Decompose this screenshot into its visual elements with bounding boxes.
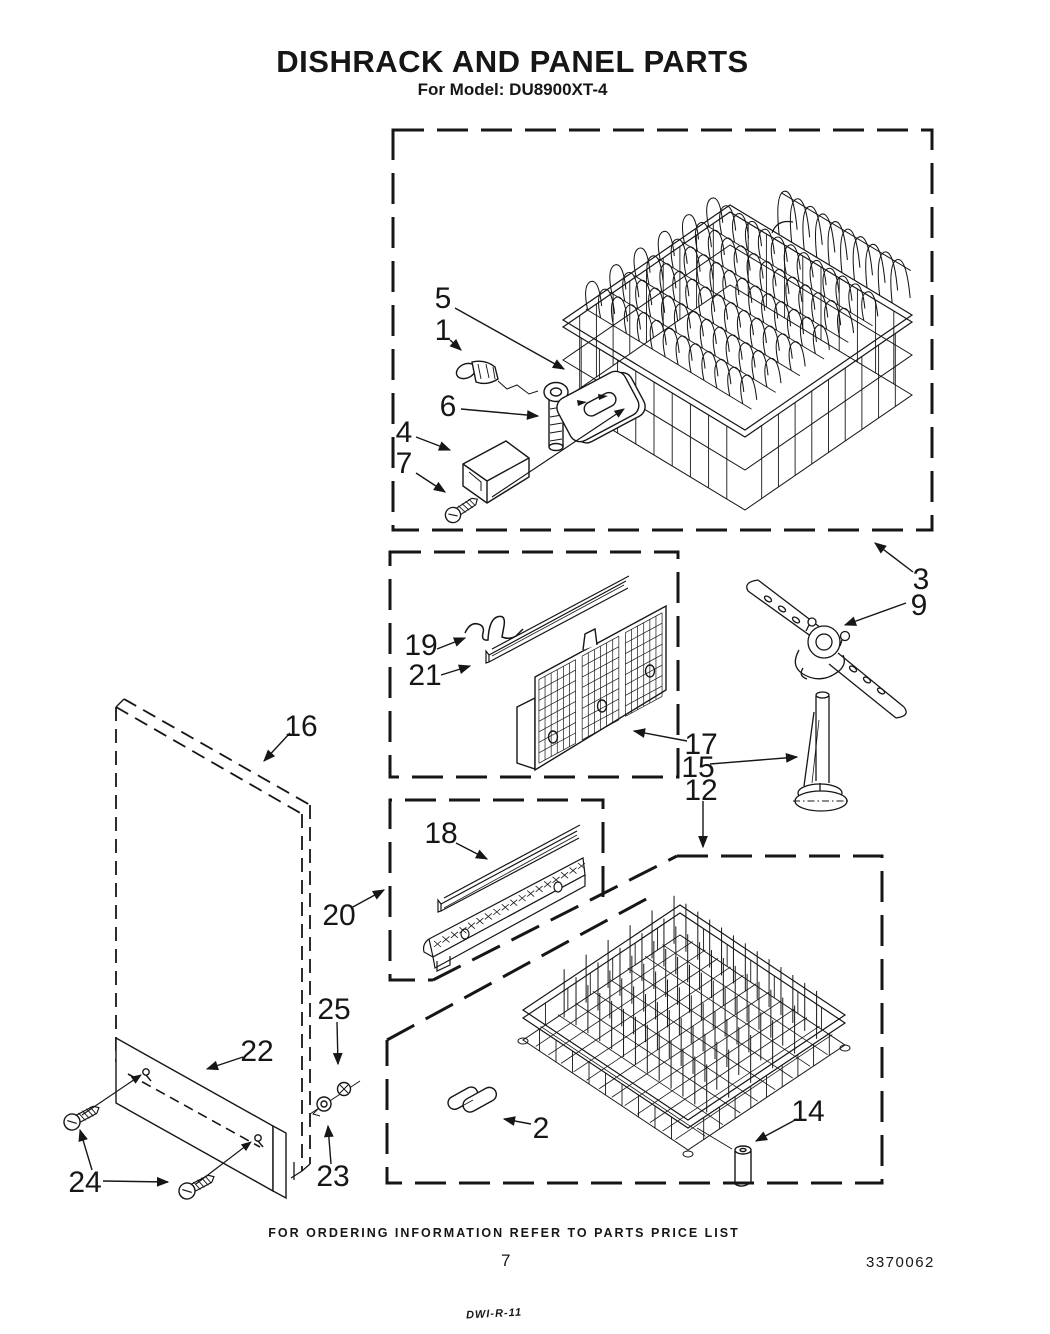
part-24-screw-b [176, 1170, 218, 1202]
callout-7: 7 [396, 449, 413, 479]
ordering-note: FOR ORDERING INFORMATION REFER TO PARTS … [0, 1226, 1008, 1240]
callout-2: 2 [533, 1114, 550, 1144]
document-number: 3370062 [866, 1254, 935, 1271]
part-14-roller [697, 1128, 751, 1186]
callout-12: 12 [684, 776, 717, 806]
model-subtitle: For Model: DU8900XT-4 [0, 80, 1025, 100]
callout-25: 25 [317, 995, 350, 1025]
part-23-nut [313, 1097, 331, 1116]
part-2-clip [446, 1077, 499, 1120]
part-17-grid-texture [539, 613, 662, 763]
callout-5: 5 [435, 284, 452, 314]
callout-1: 1 [435, 316, 452, 346]
callout-9: 9 [911, 591, 928, 621]
parts-diagram-art [0, 0, 1050, 1334]
callout-21: 21 [408, 661, 441, 691]
upper-dishrack-drawing [563, 191, 912, 510]
callout-18: 18 [424, 819, 457, 849]
page-title: DISHRACK AND PANEL PARTS [0, 44, 1025, 80]
callout-24: 24 [68, 1168, 101, 1198]
callout-23: 23 [316, 1162, 349, 1192]
callout-14: 14 [791, 1097, 824, 1127]
part-15-support-stem [793, 692, 850, 811]
part-7-screw [442, 493, 481, 526]
mount-plate [553, 365, 649, 449]
page-number: 7 [501, 1251, 510, 1271]
callout-16: 16 [284, 712, 317, 742]
callout-19: 19 [404, 631, 437, 661]
parts-catalog-page: DISHRACK AND PANEL PARTS For Model: DU89… [0, 0, 1050, 1334]
part-1-cap [454, 360, 538, 394]
callout-22: 22 [240, 1037, 273, 1067]
callout-6: 6 [440, 392, 457, 422]
callout-20: 20 [322, 901, 355, 931]
callout-4: 4 [396, 418, 413, 448]
